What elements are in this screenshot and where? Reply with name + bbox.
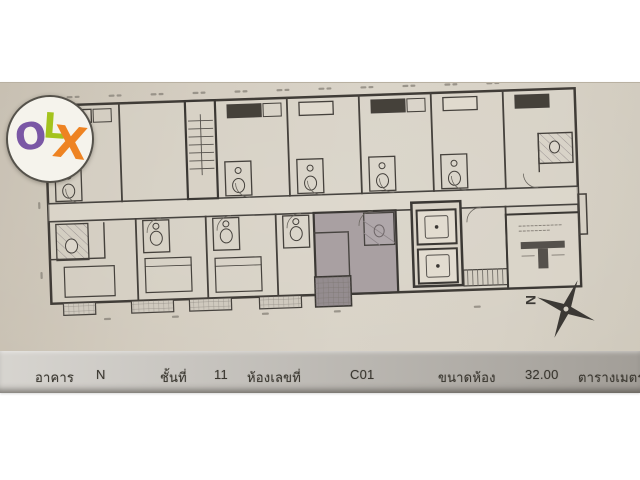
table-stem — [538, 248, 549, 268]
stairwell — [185, 100, 218, 199]
dimension-mark — [172, 316, 179, 318]
dimension-mark — [192, 92, 198, 94]
caption-value-room-number: C01 — [350, 367, 374, 382]
table-top — [521, 241, 565, 249]
caption-unit-square-meters: ตารางเมตร — [578, 367, 640, 388]
dimension-mark — [402, 85, 408, 87]
dimension-mark — [474, 305, 481, 307]
caption-label-room-number: ห้องเลขที่ — [247, 367, 301, 388]
dimension-mark — [486, 83, 492, 84]
compass-n-label: N — [523, 295, 539, 305]
dimension-mark — [334, 310, 341, 312]
right-end-room — [506, 212, 581, 288]
dimension-mark — [40, 272, 42, 279]
caption-value-building: N — [96, 367, 106, 382]
screenshot-root: N O L X อาคาร N ชั้นที่ 11 ห้องเลขที่ C0… — [0, 0, 640, 480]
elevator-1 — [417, 209, 457, 244]
dimension-mark — [151, 93, 157, 95]
olx-letter-x: X — [50, 120, 89, 168]
floor-plan-drawing: N — [0, 83, 640, 393]
dimension-mark — [159, 93, 164, 95]
dimension-mark — [117, 94, 122, 96]
dimension-mark — [38, 202, 40, 209]
dimension-mark — [284, 89, 289, 91]
olx-logo: O L X — [6, 95, 94, 183]
dimension-mark — [262, 313, 269, 315]
dimension-mark — [368, 86, 373, 88]
dimension-mark — [452, 83, 457, 85]
floor-plan-photo: N O L X อาคาร N ชั้นที่ 11 ห้องเลขที่ C0… — [0, 82, 640, 393]
caption-label-floor: ชั้นที่ — [160, 367, 187, 388]
caption-label-building: อาคาร — [35, 367, 74, 388]
dimension-mark — [494, 83, 499, 84]
dimension-mark — [200, 92, 205, 94]
dimension-mark — [276, 89, 282, 91]
caption-label-room-size: ขนาดห้อง — [438, 367, 496, 388]
dimension-mark — [410, 85, 415, 87]
dimension-mark — [75, 96, 80, 98]
unit-c01-highlighted — [313, 210, 399, 307]
dimension-mark — [360, 86, 366, 88]
caption-value-room-size: 32.00 — [525, 367, 559, 382]
caption-band: อาคาร N ชั้นที่ 11 ห้องเลขที่ C01 ขนาดห้… — [0, 351, 640, 393]
stair-hatch — [464, 269, 509, 286]
dimension-mark — [109, 95, 115, 97]
caption-value-floor: 11 — [214, 367, 228, 382]
dimension-mark — [242, 90, 247, 92]
dimension-mark — [326, 87, 331, 89]
dimension-mark — [234, 90, 240, 92]
dimension-mark — [104, 318, 111, 320]
dimension-mark — [318, 88, 324, 90]
elevator-2 — [418, 248, 458, 283]
dimension-mark — [444, 83, 450, 85]
